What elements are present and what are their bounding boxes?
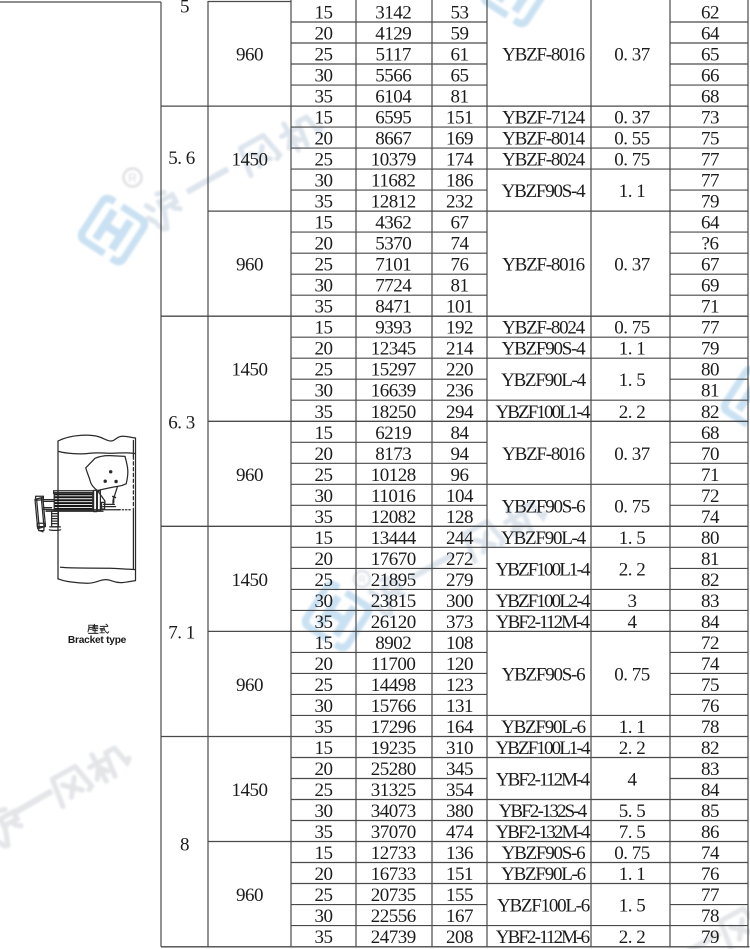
svg-text:128: 128: [446, 507, 473, 528]
svg-text:8173: 8173: [375, 444, 411, 465]
svg-text:15: 15: [315, 843, 333, 864]
svg-text:30: 30: [315, 696, 333, 717]
svg-text:66: 66: [701, 66, 719, 87]
svg-text:34073: 34073: [371, 801, 416, 822]
svg-text:186: 186: [446, 171, 473, 192]
svg-text:279: 279: [446, 570, 473, 591]
svg-text:104: 104: [446, 486, 474, 507]
svg-text:35: 35: [315, 927, 333, 948]
svg-text:960: 960: [236, 465, 263, 486]
svg-text:81: 81: [701, 381, 719, 402]
svg-text:20: 20: [315, 444, 333, 465]
svg-text:11682: 11682: [371, 171, 415, 192]
svg-text:84: 84: [701, 780, 720, 801]
svg-text:76: 76: [701, 864, 719, 885]
svg-text:YBZF100L1-4: YBZF100L1-4: [495, 402, 591, 423]
svg-text:8471: 8471: [375, 297, 411, 318]
svg-text:3142: 3142: [375, 3, 411, 24]
svg-text:77: 77: [701, 150, 719, 171]
svg-text:12082: 12082: [371, 507, 416, 528]
svg-text:35: 35: [315, 507, 333, 528]
svg-text:73: 73: [701, 108, 719, 129]
svg-text:2. 2: 2. 2: [619, 738, 646, 759]
svg-text:YBZF100L2-4: YBZF100L2-4: [495, 591, 591, 612]
svg-text:20: 20: [315, 549, 333, 570]
svg-text:30: 30: [315, 171, 333, 192]
svg-text:8902: 8902: [375, 633, 411, 654]
svg-text:354: 354: [446, 780, 474, 801]
svg-text:960: 960: [236, 255, 263, 276]
svg-text:30: 30: [315, 486, 333, 507]
svg-text:YBF2-112M-4: YBF2-112M-4: [496, 770, 591, 791]
svg-text:20: 20: [315, 129, 333, 150]
svg-text:68: 68: [701, 423, 719, 444]
svg-text:Bracket type: Bracket type: [68, 635, 127, 646]
svg-text:23815: 23815: [371, 591, 416, 612]
svg-text:80: 80: [701, 360, 719, 381]
svg-text:76: 76: [701, 696, 719, 717]
svg-text:YBZF-8024: YBZF-8024: [502, 150, 585, 171]
svg-text:77: 77: [701, 885, 719, 906]
svg-text:R: R: [128, 171, 137, 185]
svg-text:4129: 4129: [375, 24, 411, 45]
svg-text:YBZF90L-4: YBZF90L-4: [501, 528, 587, 549]
svg-text:75: 75: [701, 129, 719, 150]
svg-text:?6: ?6: [702, 234, 719, 255]
svg-text:1450: 1450: [232, 150, 268, 171]
svg-text:6595: 6595: [375, 108, 411, 129]
svg-text:4: 4: [628, 612, 638, 633]
svg-text:YBF2-132S-4: YBF2-132S-4: [499, 801, 588, 822]
svg-text:79: 79: [701, 339, 719, 360]
svg-text:0. 75: 0. 75: [614, 318, 650, 339]
svg-text:164: 164: [446, 717, 474, 738]
svg-text:220: 220: [446, 360, 473, 381]
svg-text:7101: 7101: [375, 255, 411, 276]
svg-text:474: 474: [446, 822, 474, 843]
svg-text:0. 55: 0. 55: [614, 129, 650, 150]
svg-text:11700: 11700: [371, 654, 415, 675]
svg-text:0. 37: 0. 37: [614, 255, 650, 276]
svg-text:10379: 10379: [371, 150, 416, 171]
svg-text:12733: 12733: [371, 843, 416, 864]
svg-text:YBZF90S-4: YBZF90S-4: [502, 181, 586, 202]
svg-text:272: 272: [446, 549, 473, 570]
svg-text:81: 81: [451, 276, 469, 297]
svg-text:YBF2-112M-6: YBF2-112M-6: [496, 927, 590, 948]
svg-text:4362: 4362: [375, 213, 411, 234]
svg-text:77: 77: [701, 318, 719, 339]
svg-text:30: 30: [315, 801, 333, 822]
svg-text:25: 25: [315, 45, 333, 66]
svg-text:244: 244: [446, 528, 474, 549]
svg-text:15: 15: [315, 633, 333, 654]
svg-text:3: 3: [628, 591, 637, 612]
svg-text:1. 5: 1. 5: [619, 528, 646, 549]
svg-text:25: 25: [315, 465, 333, 486]
svg-text:84: 84: [451, 423, 470, 444]
svg-text:6219: 6219: [375, 423, 411, 444]
svg-text:15: 15: [315, 3, 333, 24]
svg-text:0. 75: 0. 75: [614, 843, 650, 864]
svg-text:35: 35: [315, 612, 333, 633]
svg-text:YBZF100L1-4: YBZF100L1-4: [495, 738, 591, 759]
svg-text:79: 79: [701, 192, 719, 213]
svg-text:1. 1: 1. 1: [619, 339, 646, 360]
svg-text:1450: 1450: [232, 780, 268, 801]
svg-text:35: 35: [315, 402, 333, 423]
svg-text:YBZF100L1-4: YBZF100L1-4: [495, 559, 591, 580]
svg-text:75: 75: [701, 675, 719, 696]
svg-text:8: 8: [180, 835, 189, 856]
svg-text:25: 25: [315, 360, 333, 381]
svg-text:59: 59: [451, 24, 469, 45]
svg-text:19235: 19235: [371, 738, 416, 759]
svg-text:9393: 9393: [375, 318, 411, 339]
svg-text:37070: 37070: [371, 822, 416, 843]
svg-text:15297: 15297: [371, 360, 416, 381]
svg-text:53: 53: [451, 3, 469, 24]
svg-text:72: 72: [701, 633, 719, 654]
svg-text:15: 15: [315, 318, 333, 339]
svg-text:20: 20: [315, 339, 333, 360]
svg-text:174: 174: [446, 150, 474, 171]
svg-text:14498: 14498: [371, 675, 416, 696]
svg-text:YBZF90S-6: YBZF90S-6: [502, 843, 585, 864]
svg-text:67: 67: [701, 255, 719, 276]
svg-text:62: 62: [701, 3, 719, 24]
svg-text:20: 20: [315, 654, 333, 675]
svg-text:71: 71: [701, 297, 719, 318]
svg-text:5: 5: [180, 0, 189, 18]
svg-text:2. 2: 2. 2: [619, 927, 646, 948]
svg-text:25: 25: [315, 675, 333, 696]
svg-text:0. 37: 0. 37: [614, 108, 650, 129]
svg-text:0. 37: 0. 37: [614, 444, 650, 465]
svg-text:35: 35: [315, 87, 333, 108]
svg-text:1. 5: 1. 5: [619, 896, 646, 917]
svg-text:21895: 21895: [371, 570, 416, 591]
svg-text:25: 25: [315, 780, 333, 801]
svg-text:82: 82: [701, 402, 719, 423]
svg-text:1. 1: 1. 1: [619, 864, 646, 885]
svg-text:YBZF90S-6: YBZF90S-6: [502, 496, 585, 517]
svg-text:64: 64: [701, 213, 720, 234]
svg-text:YBZF90S-6: YBZF90S-6: [502, 664, 585, 685]
svg-text:17296: 17296: [371, 717, 416, 738]
svg-text:68: 68: [701, 87, 719, 108]
svg-text:192: 192: [446, 318, 473, 339]
svg-text:0. 75: 0. 75: [614, 664, 650, 685]
svg-text:169: 169: [446, 129, 473, 150]
svg-text:64: 64: [701, 24, 720, 45]
svg-text:136: 136: [446, 843, 473, 864]
svg-text:77: 77: [701, 171, 719, 192]
svg-text:0. 37: 0. 37: [614, 45, 650, 66]
svg-text:1. 5: 1. 5: [619, 370, 646, 391]
svg-text:15: 15: [315, 738, 333, 759]
svg-text:12345: 12345: [371, 339, 416, 360]
svg-text:69: 69: [701, 276, 719, 297]
svg-text:83: 83: [701, 759, 719, 780]
svg-text:82: 82: [701, 738, 719, 759]
svg-text:7. 1: 7. 1: [168, 622, 195, 643]
svg-text:108: 108: [446, 633, 473, 654]
svg-text:16639: 16639: [371, 381, 416, 402]
svg-text:155: 155: [446, 885, 473, 906]
svg-text:15: 15: [315, 108, 333, 129]
svg-text:25: 25: [315, 570, 333, 591]
svg-text:8667: 8667: [375, 129, 411, 150]
svg-text:22556: 22556: [371, 906, 416, 927]
svg-text:81: 81: [451, 87, 469, 108]
svg-text:YBZF90L-6: YBZF90L-6: [501, 864, 586, 885]
svg-text:2. 2: 2. 2: [619, 559, 646, 580]
svg-text:16733: 16733: [371, 864, 416, 885]
svg-text:YBZF-8016: YBZF-8016: [502, 255, 584, 276]
svg-text:5566: 5566: [375, 66, 411, 87]
svg-text:84: 84: [701, 612, 720, 633]
svg-text:6. 3: 6. 3: [168, 412, 195, 433]
svg-text:YBF2-132M-4: YBF2-132M-4: [495, 822, 591, 843]
svg-text:76: 76: [451, 255, 469, 276]
svg-text:YBZF90L-4: YBZF90L-4: [501, 370, 587, 391]
svg-text:30: 30: [315, 66, 333, 87]
svg-text:345: 345: [446, 759, 473, 780]
svg-text:35: 35: [315, 822, 333, 843]
svg-text:15: 15: [315, 423, 333, 444]
svg-text:960: 960: [236, 885, 263, 906]
svg-text:YBZF-8016: YBZF-8016: [502, 45, 584, 66]
svg-text:96: 96: [451, 465, 469, 486]
svg-text:12812: 12812: [371, 192, 416, 213]
svg-text:236: 236: [446, 381, 473, 402]
svg-text:960: 960: [236, 45, 263, 66]
svg-text:65: 65: [701, 45, 719, 66]
svg-text:26120: 26120: [371, 612, 416, 633]
svg-text:20: 20: [315, 24, 333, 45]
svg-text:YBZF-8024: YBZF-8024: [502, 318, 585, 339]
svg-text:15: 15: [315, 213, 333, 234]
svg-text:78: 78: [701, 717, 719, 738]
svg-text:11016: 11016: [371, 486, 415, 507]
svg-text:74: 74: [451, 234, 470, 255]
svg-text:74: 74: [701, 507, 720, 528]
svg-text:0. 75: 0. 75: [614, 150, 650, 171]
svg-text:YBF2-112M-4: YBF2-112M-4: [496, 612, 591, 633]
svg-text:10128: 10128: [371, 465, 416, 486]
svg-text:35: 35: [315, 297, 333, 318]
svg-text:123: 123: [446, 675, 473, 696]
svg-text:7. 5: 7. 5: [619, 822, 646, 843]
svg-text:167: 167: [446, 906, 473, 927]
svg-text:94: 94: [451, 444, 470, 465]
svg-text:1. 1: 1. 1: [619, 717, 646, 738]
svg-text:30: 30: [315, 276, 333, 297]
svg-text:120: 120: [446, 654, 473, 675]
svg-text:20: 20: [315, 864, 333, 885]
svg-text:74: 74: [701, 843, 720, 864]
svg-text:78: 78: [701, 906, 719, 927]
svg-text:373: 373: [446, 612, 473, 633]
svg-text:72: 72: [701, 486, 719, 507]
svg-text:85: 85: [701, 801, 719, 822]
svg-text:71: 71: [701, 465, 719, 486]
svg-text:18250: 18250: [371, 402, 416, 423]
svg-text:151: 151: [446, 108, 473, 129]
svg-text:25: 25: [315, 255, 333, 276]
svg-text:74: 74: [701, 654, 720, 675]
svg-text:YBZF90L-6: YBZF90L-6: [501, 717, 586, 738]
svg-text:1450: 1450: [232, 360, 268, 381]
svg-text:67: 67: [451, 213, 469, 234]
svg-text:25: 25: [315, 885, 333, 906]
svg-text:30: 30: [315, 591, 333, 612]
svg-text:83: 83: [701, 591, 719, 612]
svg-text:101: 101: [446, 297, 473, 318]
svg-text:YBZF-7124: YBZF-7124: [502, 108, 585, 129]
svg-text:20: 20: [315, 234, 333, 255]
svg-text:25280: 25280: [371, 759, 416, 780]
svg-text:YBZF-8014: YBZF-8014: [502, 129, 585, 150]
svg-text:YBZF90S-4: YBZF90S-4: [502, 339, 586, 360]
svg-text:232: 232: [446, 192, 473, 213]
svg-text:5. 6: 5. 6: [168, 148, 195, 169]
svg-text:131: 131: [446, 696, 473, 717]
svg-text:80: 80: [701, 528, 719, 549]
svg-text:310: 310: [446, 738, 473, 759]
svg-text:35: 35: [315, 717, 333, 738]
svg-text:61: 61: [451, 45, 469, 66]
svg-text:R: R: [358, 574, 366, 586]
svg-text:1. 1: 1. 1: [619, 181, 646, 202]
svg-text:15: 15: [315, 528, 333, 549]
svg-text:6104: 6104: [375, 87, 412, 108]
svg-text:YBZF-8016: YBZF-8016: [502, 444, 584, 465]
svg-text:70: 70: [701, 444, 719, 465]
svg-text:20735: 20735: [371, 885, 416, 906]
svg-text:24739: 24739: [371, 927, 416, 948]
svg-text:5. 5: 5. 5: [619, 801, 646, 822]
svg-text:65: 65: [451, 66, 469, 87]
svg-text:31325: 31325: [371, 780, 416, 801]
svg-text:1450: 1450: [232, 570, 268, 591]
svg-text:82: 82: [701, 570, 719, 591]
svg-text:30: 30: [315, 906, 333, 927]
svg-text:35: 35: [315, 192, 333, 213]
svg-text:79: 79: [701, 927, 719, 948]
svg-text:2. 2: 2. 2: [619, 402, 646, 423]
svg-text:214: 214: [446, 339, 474, 360]
svg-text:13444: 13444: [371, 528, 417, 549]
svg-text:25: 25: [315, 150, 333, 171]
svg-text:20: 20: [315, 759, 333, 780]
svg-text:5370: 5370: [375, 234, 411, 255]
svg-text:960: 960: [236, 675, 263, 696]
svg-text:5117: 5117: [376, 45, 411, 66]
svg-text:17670: 17670: [371, 549, 416, 570]
svg-text:15766: 15766: [371, 696, 416, 717]
svg-text:81: 81: [701, 549, 719, 570]
svg-text:4: 4: [628, 770, 638, 791]
svg-text:294: 294: [446, 402, 474, 423]
svg-text:300: 300: [446, 591, 473, 612]
svg-text:0. 75: 0. 75: [614, 496, 650, 517]
svg-text:7724: 7724: [375, 276, 412, 297]
svg-text:86: 86: [701, 822, 719, 843]
svg-text:208: 208: [446, 927, 473, 948]
svg-text:151: 151: [446, 864, 473, 885]
svg-text:380: 380: [446, 801, 473, 822]
svg-text:YBZF100L-6: YBZF100L-6: [497, 896, 590, 917]
svg-text:30: 30: [315, 381, 333, 402]
